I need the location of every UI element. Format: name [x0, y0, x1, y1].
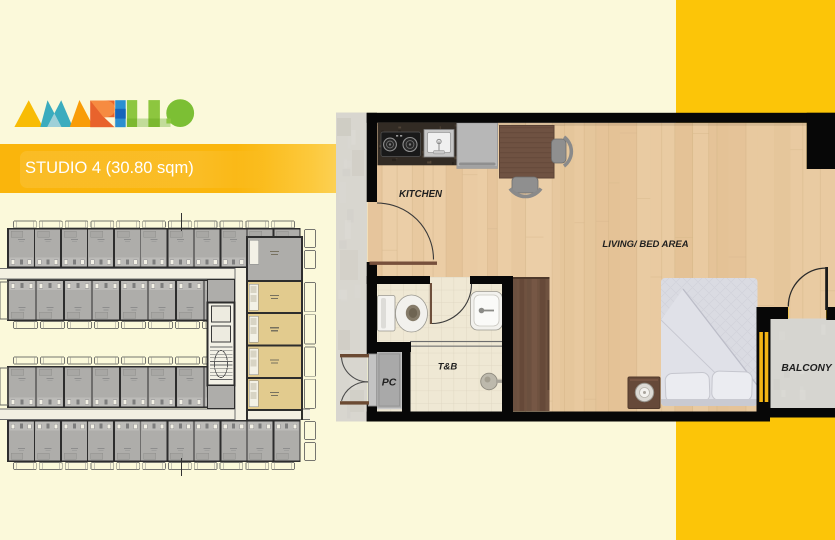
- svg-text:LIVING/ BED AREA: LIVING/ BED AREA: [602, 239, 688, 250]
- svg-text:T&B: T&B: [438, 362, 458, 373]
- svg-text:PC: PC: [382, 377, 397, 389]
- svg-text:BALCONY: BALCONY: [781, 363, 833, 374]
- svg-text:KITCHEN: KITCHEN: [399, 189, 443, 200]
